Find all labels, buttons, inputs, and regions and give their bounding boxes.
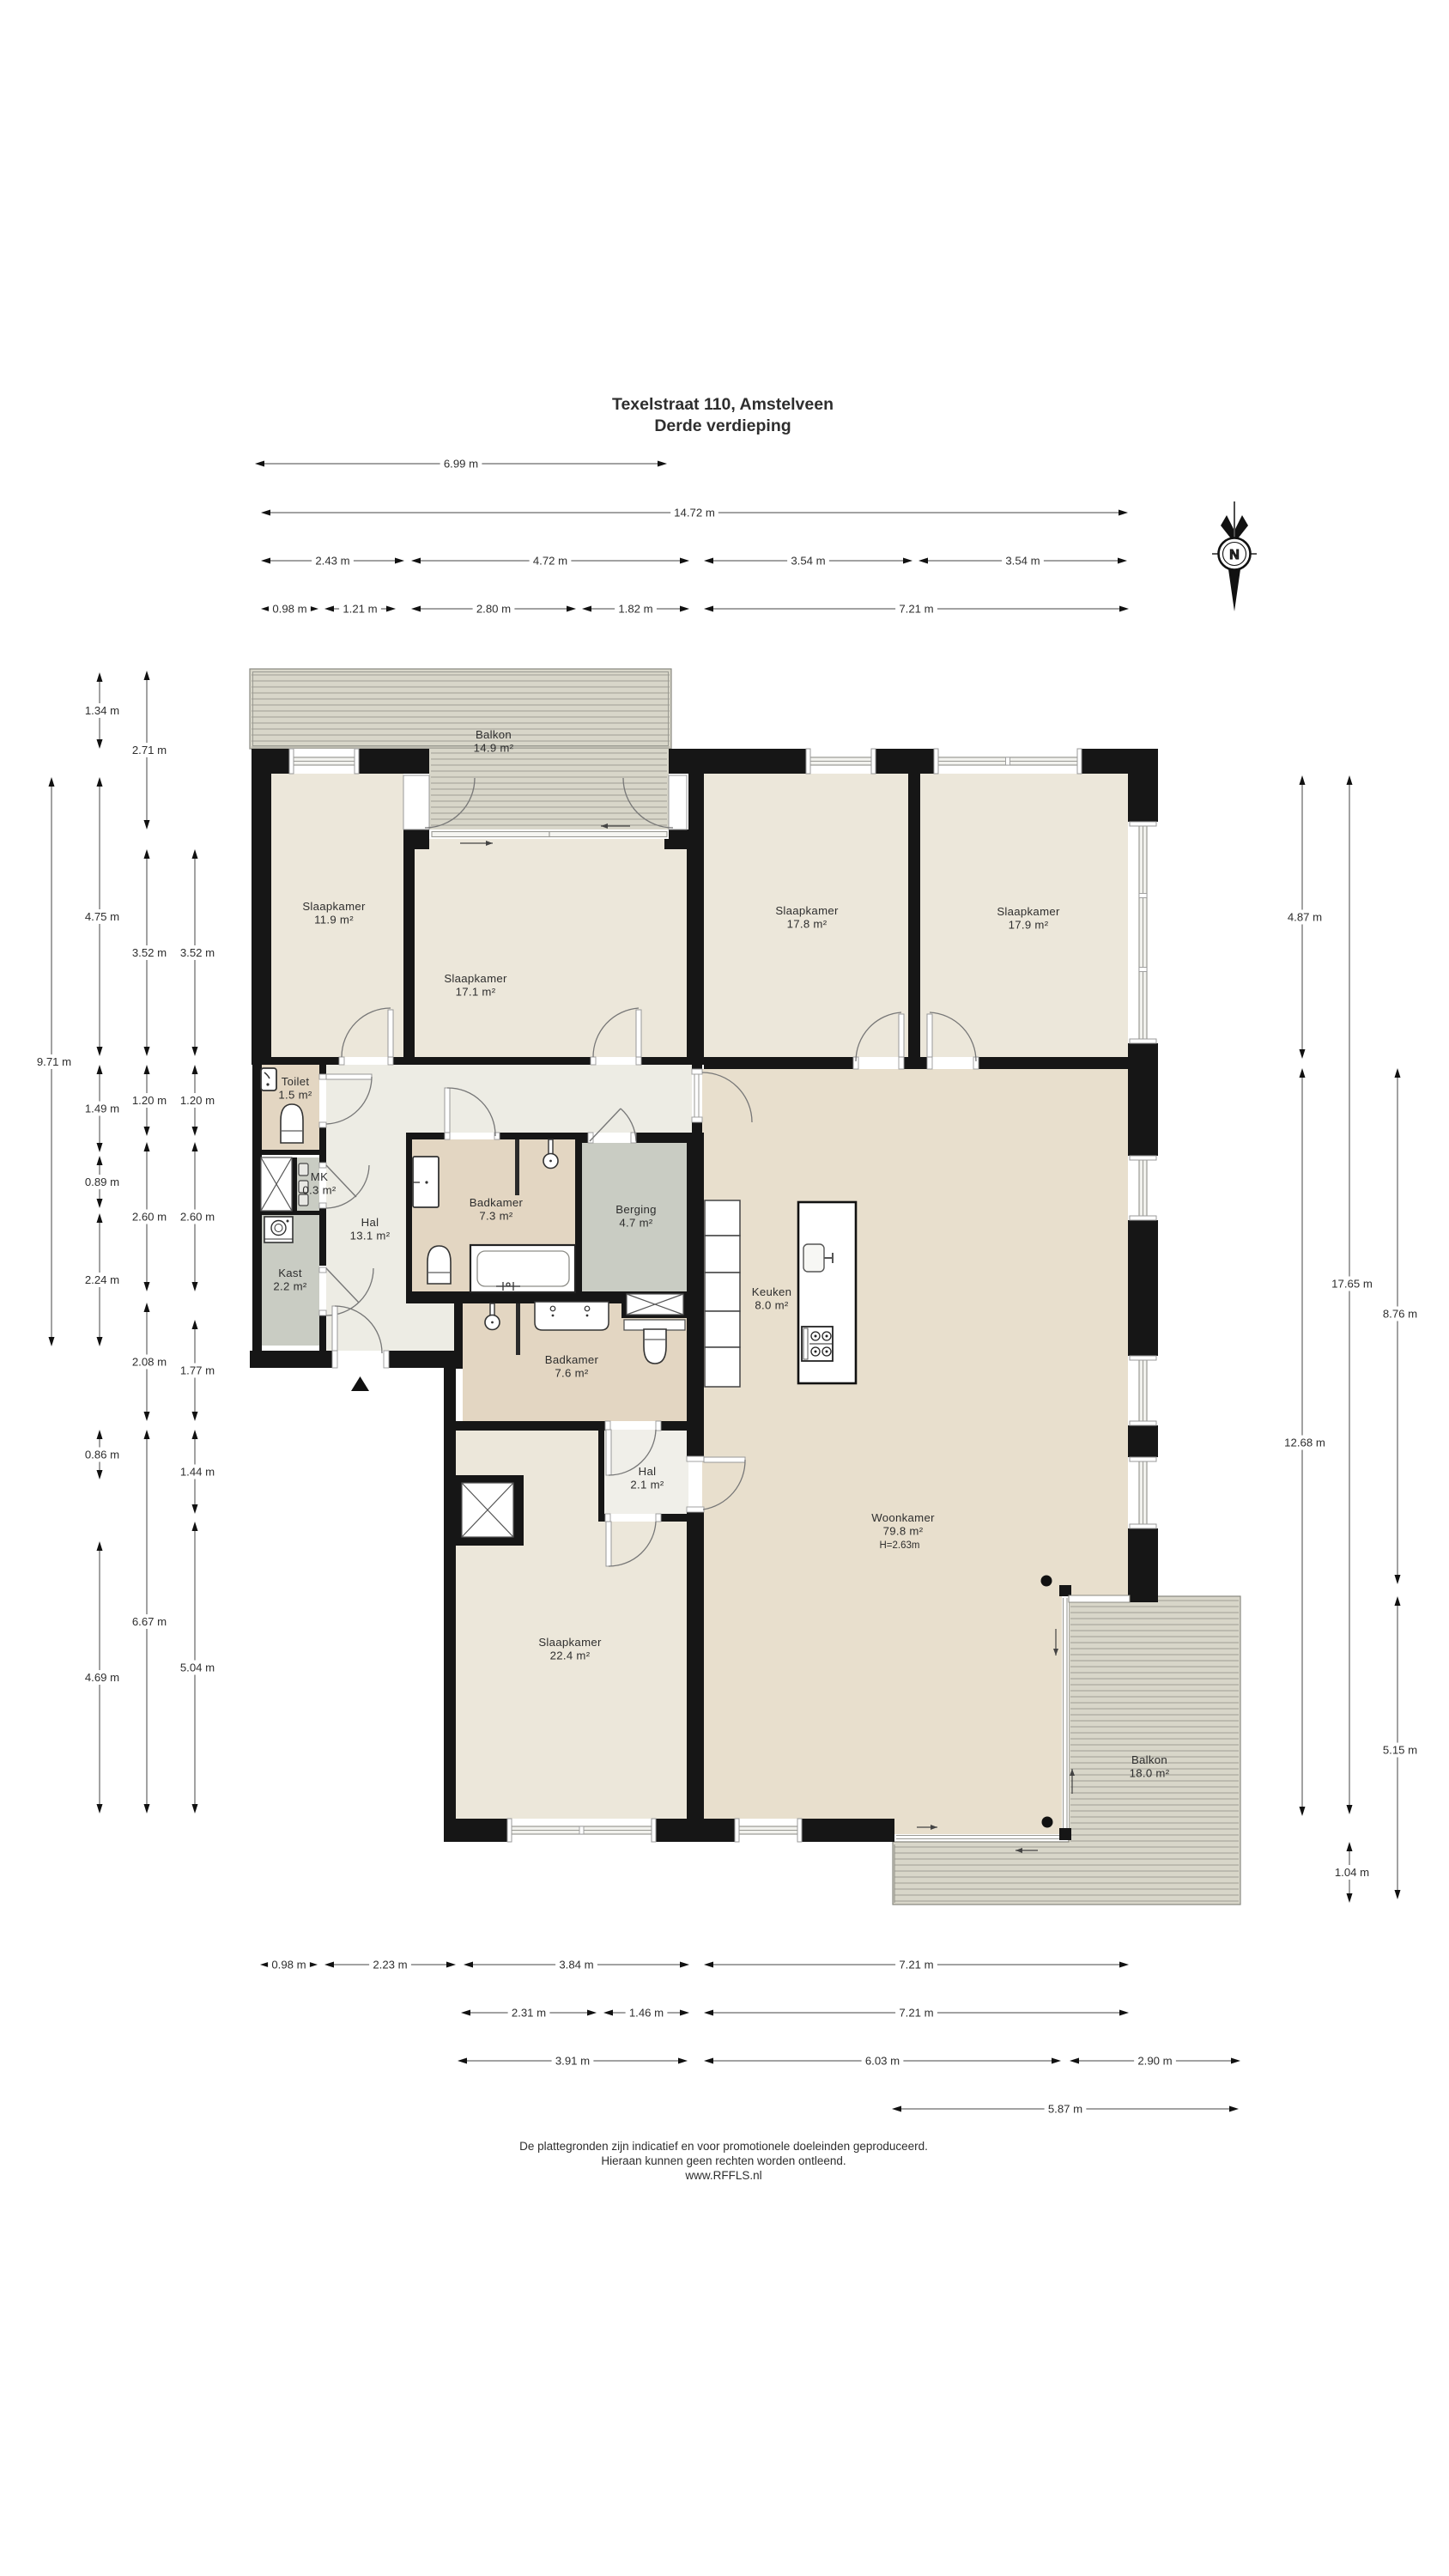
svg-text:17.9 m²: 17.9 m² [1009, 919, 1049, 932]
svg-text:2.60 m: 2.60 m [132, 1211, 167, 1224]
svg-text:7.6 m²: 7.6 m² [555, 1367, 588, 1380]
svg-text:5.04 m: 5.04 m [180, 1662, 215, 1674]
svg-text:3.52 m: 3.52 m [132, 946, 167, 959]
svg-text:2.31 m: 2.31 m [512, 2007, 546, 2020]
svg-text:Woonkamer: Woonkamer [871, 1511, 935, 1524]
svg-text:6.67 m: 6.67 m [132, 1615, 167, 1628]
svg-text:6.03 m: 6.03 m [865, 2055, 900, 2068]
svg-text:1.82 m: 1.82 m [618, 603, 652, 616]
svg-text:3.54 m: 3.54 m [1005, 555, 1040, 568]
svg-text:2.90 m: 2.90 m [1137, 2055, 1172, 2068]
svg-text:9.71 m: 9.71 m [37, 1055, 71, 1068]
svg-text:11.9 m²: 11.9 m² [314, 914, 354, 927]
svg-text:3.91 m: 3.91 m [555, 2055, 590, 2068]
svg-text:2.08 m: 2.08 m [132, 1356, 167, 1369]
svg-text:Slaapkamer: Slaapkamer [444, 972, 507, 985]
svg-text:14.72 m: 14.72 m [674, 507, 715, 519]
svg-text:Slaapkamer: Slaapkamer [302, 900, 366, 913]
svg-text:Slaapkamer: Slaapkamer [538, 1636, 602, 1649]
svg-text:0.98 m: 0.98 m [271, 1959, 306, 1971]
svg-text:Texelstraat 110, Amstelveen: Texelstraat 110, Amstelveen [612, 395, 834, 414]
svg-text:De plattegronden zijn indicati: De plattegronden zijn indicatief en voor… [519, 2140, 928, 2153]
svg-text:2.24 m: 2.24 m [85, 1273, 119, 1286]
svg-text:3.52 m: 3.52 m [180, 946, 215, 959]
svg-text:Slaapkamer: Slaapkamer [775, 904, 839, 917]
svg-text:Derde verdieping: Derde verdieping [654, 416, 791, 435]
svg-text:4.72 m: 4.72 m [533, 555, 567, 568]
svg-text:1.34 m: 1.34 m [85, 704, 119, 717]
svg-text:N: N [1229, 548, 1240, 562]
svg-text:Balkon: Balkon [476, 728, 512, 741]
svg-text:1.46 m: 1.46 m [629, 2007, 664, 2020]
svg-text:79.8 m²: 79.8 m² [883, 1525, 924, 1538]
svg-text:MK: MK [311, 1170, 328, 1183]
svg-text:4.7 m²: 4.7 m² [619, 1217, 652, 1230]
svg-text:Balkon: Balkon [1131, 1753, 1167, 1766]
svg-text:0.86 m: 0.86 m [85, 1449, 119, 1461]
svg-text:13.1 m²: 13.1 m² [350, 1230, 391, 1242]
svg-text:5.15 m: 5.15 m [1383, 1744, 1417, 1757]
svg-text:0.89 m: 0.89 m [85, 1176, 119, 1188]
svg-text:Keuken: Keuken [752, 1285, 792, 1298]
svg-text:7.3 m²: 7.3 m² [479, 1210, 512, 1223]
svg-text:17.65 m: 17.65 m [1331, 1278, 1373, 1291]
svg-text:8.0 m²: 8.0 m² [755, 1299, 788, 1312]
svg-text:www.RFFLS.nl: www.RFFLS.nl [684, 2169, 761, 2182]
svg-text:7.21 m: 7.21 m [899, 603, 933, 616]
svg-text:12.68 m: 12.68 m [1284, 1437, 1325, 1449]
svg-text:Badkamer: Badkamer [470, 1196, 524, 1209]
svg-text:Hieraan kunnen geen rechten wo: Hieraan kunnen geen rechten worden ontle… [601, 2154, 846, 2167]
svg-text:4.69 m: 4.69 m [85, 1671, 119, 1684]
svg-text:2.71 m: 2.71 m [132, 744, 167, 756]
svg-text:22.4 m²: 22.4 m² [550, 1649, 591, 1662]
svg-text:1.5 m²: 1.5 m² [278, 1089, 312, 1102]
svg-text:18.0 m²: 18.0 m² [1130, 1767, 1170, 1780]
svg-text:4.87 m: 4.87 m [1288, 911, 1322, 924]
svg-text:1.49 m: 1.49 m [85, 1103, 119, 1115]
svg-text:7.21 m: 7.21 m [899, 2007, 933, 2020]
svg-text:1.04 m: 1.04 m [1335, 1866, 1369, 1879]
svg-text:1.20 m: 1.20 m [132, 1094, 167, 1107]
svg-text:4.75 m: 4.75 m [85, 910, 119, 923]
svg-text:0.98 m: 0.98 m [272, 603, 306, 616]
svg-text:6.99 m: 6.99 m [444, 458, 478, 471]
svg-text:2.80 m: 2.80 m [476, 603, 511, 616]
svg-text:Slaapkamer: Slaapkamer [997, 905, 1060, 918]
svg-text:3.84 m: 3.84 m [559, 1959, 593, 1971]
svg-text:1.21 m: 1.21 m [343, 603, 377, 616]
svg-text:3.54 m: 3.54 m [791, 555, 825, 568]
svg-text:17.8 m²: 17.8 m² [787, 918, 828, 931]
svg-text:7.21 m: 7.21 m [899, 1959, 933, 1971]
svg-text:Toilet: Toilet [282, 1075, 310, 1088]
svg-text:H=2.63m: H=2.63m [880, 1540, 920, 1551]
svg-text:1.44 m: 1.44 m [180, 1466, 215, 1479]
svg-text:2.60 m: 2.60 m [180, 1211, 215, 1224]
svg-text:1.77 m: 1.77 m [180, 1364, 215, 1377]
svg-text:2.23 m: 2.23 m [373, 1959, 407, 1971]
svg-text:Hal: Hal [639, 1465, 657, 1478]
svg-text:14.9 m²: 14.9 m² [474, 742, 514, 755]
svg-text:5.87 m: 5.87 m [1048, 2103, 1082, 2116]
svg-text:Kast: Kast [278, 1267, 302, 1279]
svg-text:2.43 m: 2.43 m [315, 555, 349, 568]
svg-text:17.1 m²: 17.1 m² [456, 986, 496, 999]
svg-text:2.1 m²: 2.1 m² [630, 1479, 664, 1492]
svg-text:Berging: Berging [615, 1203, 657, 1216]
svg-text:8.76 m: 8.76 m [1383, 1308, 1417, 1321]
svg-text:Badkamer: Badkamer [545, 1353, 599, 1366]
svg-text:Hal: Hal [361, 1216, 379, 1229]
svg-text:0.3 m²: 0.3 m² [302, 1184, 336, 1197]
svg-text:1.20 m: 1.20 m [180, 1094, 215, 1107]
svg-text:2.2 m²: 2.2 m² [273, 1280, 306, 1293]
